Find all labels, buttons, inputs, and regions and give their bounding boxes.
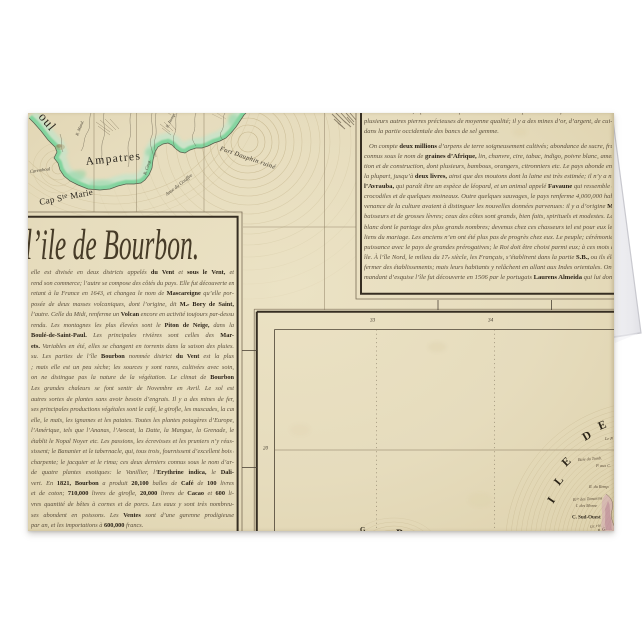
svg-text:G: G xyxy=(360,526,366,531)
svg-text:I. des Morne: I. des Morne xyxy=(575,503,597,508)
svg-text:Baie du Tomb.: Baie du Tomb. xyxy=(578,455,602,462)
svg-text:P. aux C.: P. aux C. xyxy=(595,463,611,468)
svg-text:E: E xyxy=(596,419,608,433)
svg-text:Caremboul: Caremboul xyxy=(29,166,51,174)
svg-text:R. du Remp.: R. du Remp. xyxy=(588,484,609,489)
svg-text:Anse du Gouffre: Anse du Gouffre xyxy=(164,173,194,198)
svg-text:20: 20 xyxy=(263,447,269,452)
svg-text:R. Mand.: R. Mand. xyxy=(74,120,85,138)
svg-text:34: 34 xyxy=(488,317,494,324)
svg-text:Le P.: Le P. xyxy=(604,436,613,441)
svg-text:L: L xyxy=(552,474,566,488)
svg-text:D: D xyxy=(581,429,594,444)
svg-text:Cap Ste Marie: Cap Ste Marie xyxy=(38,187,93,207)
svg-text:33: 33 xyxy=(370,318,376,324)
svg-text:C. Sud-Ouest: C. Sud-Ouest xyxy=(572,516,601,521)
svg-text:R. Itomp.: R. Itomp. xyxy=(164,113,176,129)
svg-text:Ampatres: Ampatres xyxy=(85,150,142,168)
svg-text:B.ie des Tamarins: B.ie des Tamarins xyxy=(573,495,603,502)
svg-text:P: P xyxy=(396,528,403,532)
